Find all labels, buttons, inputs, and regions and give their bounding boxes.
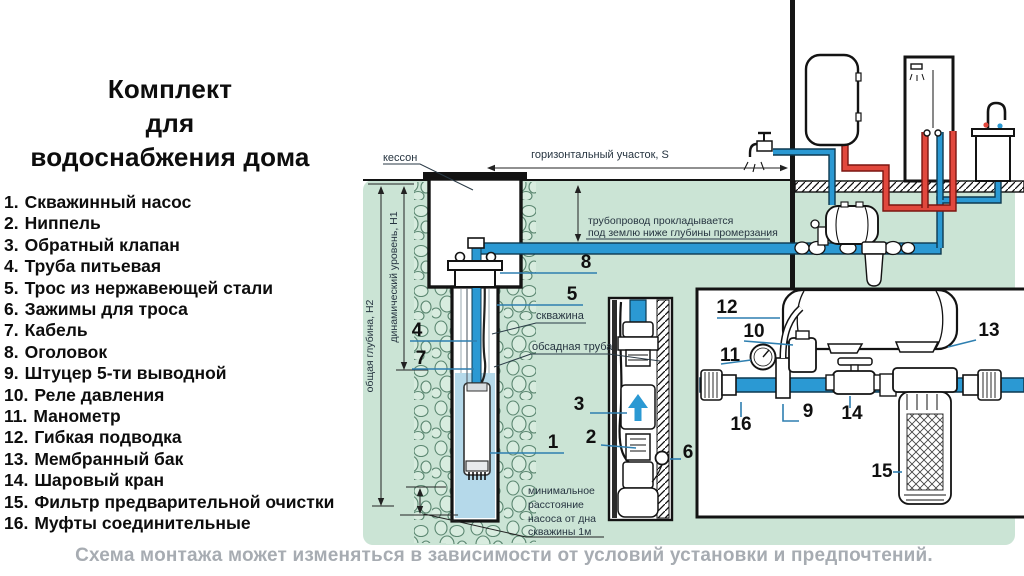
callout-13: 13 [978,320,999,341]
label-kesson: кессон [383,152,417,164]
label-min-distance-4: скважины 1м [528,526,591,538]
station-gauge-icon [811,220,819,228]
infographic-water-supply-kit: Комплект для водоснабжения дома 1.Скважи… [0,0,1024,576]
shower-cabin [905,57,953,181]
label-pipeline-note-2: под землю ниже глубины промерзания [588,227,778,239]
callout-3: 3 [574,394,585,415]
shower-head-icon [911,64,922,69]
water-heater [806,55,861,145]
callout-12: 12 [716,297,737,318]
callout-7: 7 [416,348,427,369]
label-min-distance-3: насоса от дна [528,513,596,525]
submersible-pump [464,383,490,480]
callout-4: 4 [412,320,423,341]
rope-clamp-detail [656,452,669,465]
outdoor-tap-icon [744,133,772,172]
callout-8: 8 [581,252,592,273]
coupling-left [701,370,736,400]
well-shaft [452,266,498,521]
pump-detail-panel [609,298,672,520]
pump-top-detail [618,488,658,517]
callout-11: 11 [720,345,741,366]
five-way-fitting [776,358,790,398]
label-min-distance-1: минимальное [528,485,595,497]
label-casing-pipe: обсадная труба [532,341,613,353]
pressure-switch [789,331,816,372]
callout-16: 16 [730,414,751,435]
coupling-right [963,370,1001,400]
callout-5: 5 [567,284,578,305]
label-dynamic-level: динамический уровень, Н1 [388,211,400,342]
label-total-depth: общая глубина, Н2 [364,299,376,392]
casing-wall-hatched [657,300,669,518]
shower-knob [924,130,930,136]
faucet-icon [988,103,1005,128]
schematic-diagram: кессон горизонтальный участок, S трубопр… [0,0,1024,576]
callout-2: 2 [586,427,597,448]
callout-10: 10 [743,321,764,342]
callout-9: 9 [803,401,814,422]
callout-15: 15 [871,461,893,482]
callout-14: 14 [841,403,863,424]
pressure-tank-small [826,202,878,244]
shower-knob [935,130,941,136]
pre-filter-detail [893,368,957,504]
label-min-distance-2: расстояние [528,499,584,511]
callout-1: 1 [548,432,559,453]
label-pipeline-note-1: трубопровод прокладывается [588,215,733,227]
callout-6: 6 [683,442,694,463]
sink [972,103,1014,181]
pressure-gauge [751,345,776,370]
label-well: скважина [536,310,585,322]
label-horizontal-section: горизонтальный участок, S [531,149,669,161]
